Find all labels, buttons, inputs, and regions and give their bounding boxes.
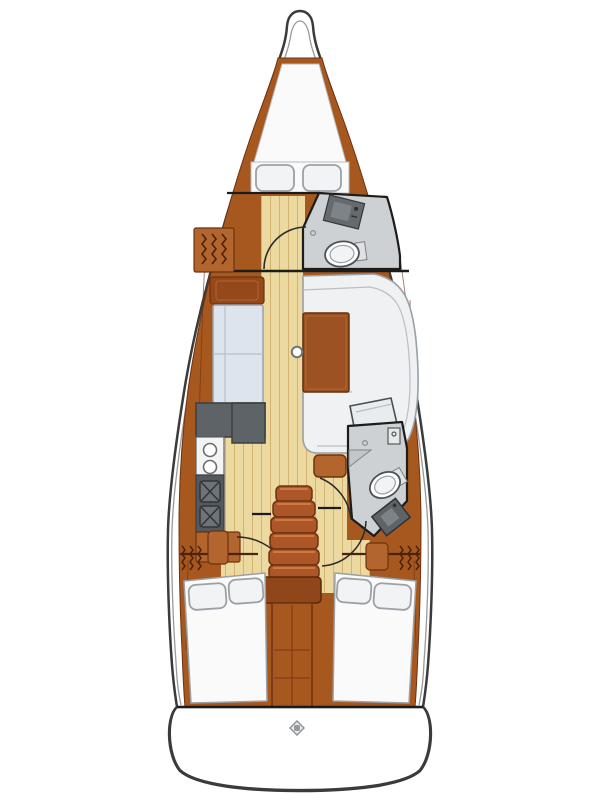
v-berth-mattress xyxy=(254,64,346,162)
companionway-stairs xyxy=(269,486,319,579)
galley-counter-extension xyxy=(232,403,265,443)
boat-floor-plan xyxy=(0,0,600,800)
mast-foot xyxy=(292,347,302,357)
stair-landing xyxy=(259,577,321,603)
companionway-side-step xyxy=(314,455,346,477)
v-berth-pillow-port xyxy=(256,165,294,191)
stove-burner-2 xyxy=(204,461,217,474)
swim-platform xyxy=(170,707,430,790)
floor-plan-canvas xyxy=(0,0,600,800)
port-aft-locker xyxy=(208,531,228,564)
v-berth-pillow-starboard xyxy=(303,165,341,191)
forward-wardrobe xyxy=(194,228,234,272)
saloon-table xyxy=(303,313,349,392)
starboard-aft-locker xyxy=(366,543,388,570)
port-aft-pillow-2 xyxy=(228,578,264,604)
stove-burner-1 xyxy=(204,444,217,457)
port-aft-pillow-1 xyxy=(188,583,227,611)
starboard-aft-pillow-1 xyxy=(336,578,372,604)
starboard-aft-pillow-2 xyxy=(373,583,412,611)
